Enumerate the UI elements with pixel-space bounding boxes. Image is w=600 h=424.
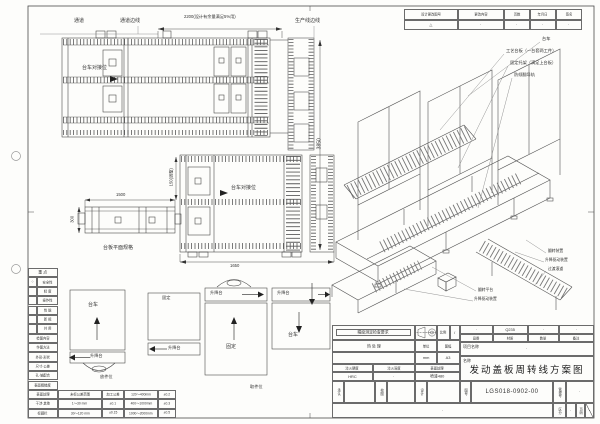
tolerance-cell: 未标公差范围 — [58, 390, 102, 399]
design-sign-cell — [427, 381, 460, 403]
station-c-box-label: 固定 — [226, 345, 236, 351]
checklist-mark-cell — [28, 296, 37, 305]
tolerance-cell: ±0.5 — [158, 409, 176, 418]
iso-callout-cart: 台车 — [542, 37, 550, 42]
station-a-box-label: 台车 — [88, 303, 98, 309]
surface-label-cell: 表面处理 — [415, 364, 460, 372]
dim-3850: 3850 — [317, 132, 323, 156]
drawing-no-label-cell: 图号 — [460, 381, 471, 403]
checklist-mark-cell — [28, 324, 37, 333]
revision-value-cell: △ — [404, 20, 458, 31]
checklist-label-cell: 操作性 — [37, 296, 59, 305]
dock-label-mid: 台车对接位 — [231, 186, 256, 192]
passage-edge-label: 通道边线 — [120, 19, 140, 25]
check-label-cell: 校图 — [375, 381, 387, 403]
checklist-label-cell: 共 用 — [37, 324, 59, 333]
tolerance-cell: ±0.2 — [158, 390, 176, 399]
revision-value-cell: · — [556, 20, 582, 31]
iso-callout-lift-drive: 升降驱动装置 — [545, 258, 568, 262]
project-name-label: 项目名称 — [463, 344, 479, 350]
drawing-name-cell: 名称 发动盖板周转线方案图 — [460, 356, 594, 381]
dock-label-top: 台车对接位 — [82, 66, 107, 72]
tolerance-cell: 30～120 mm — [58, 409, 102, 418]
tolerance-cell: ±0.15 — [102, 409, 124, 418]
dim-300: 300 — [71, 209, 76, 229]
iso-callout-pallet: 工艺台板（一台套两工件） — [506, 49, 556, 54]
tolerance-cell: ±0.3 — [158, 399, 176, 408]
checklist-item: 干涉·其他 — [28, 399, 58, 408]
station-d-box-label: 台车 — [288, 333, 298, 339]
part-no-label-cell: 品番 — [460, 334, 493, 342]
inspection-header-cell: 精度测定检查要求 — [332, 325, 415, 340]
checklist-section1-header: 重 点 — [28, 268, 58, 277]
checklist-item: 外形·形状 — [28, 352, 58, 361]
checklist-mark-cell: ○ — [28, 277, 37, 286]
revision-header-cell: 签名 — [556, 9, 582, 20]
station-a-strip-label: 升降台 — [90, 354, 103, 359]
revision-header-cell: 年月日 — [530, 9, 556, 20]
heat-value-cell — [332, 352, 415, 364]
tolerance-cell: 1～30 mm — [58, 399, 102, 408]
checklist-label-cell: 性 能 — [37, 306, 59, 315]
revision-value-cell: · — [504, 20, 530, 31]
plan-top-view — [62, 31, 270, 137]
check-sign-cell — [387, 381, 415, 403]
drawing-name-label: 名称 — [463, 358, 471, 364]
iso-view — [332, 49, 572, 313]
project-name-cell: 项目名称 · — [460, 342, 594, 356]
inspection-inner-box: 精度测定检查要求 — [336, 329, 411, 336]
dim-1500: 1500 — [116, 193, 125, 198]
checklist-item: 作图方法 — [28, 343, 58, 352]
checklist-item: 表面粗糙度 — [28, 381, 58, 390]
iso-callout-lift-drive2: 升降驱动装置 — [474, 297, 497, 301]
depth-label-cell: 淬火深度 — [373, 364, 415, 372]
station-d-strip-label: 升降台 — [277, 291, 290, 296]
checklist-label-cell: 新 规 — [37, 315, 59, 324]
checklist-mark-cell — [28, 306, 37, 315]
side-view-caption: 台板平面规格 — [103, 246, 133, 252]
production-line-column — [270, 38, 314, 150]
tolerance-cell: 120～400mm — [124, 390, 158, 399]
checklist-item: 孔·轴配合 — [28, 371, 58, 380]
station-d-caption: 取件位 — [250, 385, 263, 390]
design-label-cell: 设计 — [415, 381, 427, 403]
drawing-no-value-cell: LGS018-0902-00 — [471, 381, 553, 403]
approve-label-cell: 承认 — [332, 381, 344, 403]
dim-2200: 2200(设计有余量满足5%用) — [184, 15, 236, 20]
tolerance-cell: 加工公差 — [102, 390, 124, 399]
hardness-label-cell: 淬火硬度 — [332, 364, 373, 372]
page-slash-cell — [585, 403, 594, 418]
unit-label-cell: 单位 — [415, 340, 437, 352]
qty-label-cell: 数量 — [528, 334, 559, 342]
revision-header-cell: 设计更改图号 — [404, 9, 458, 20]
material-value-cell: Q235 — [493, 325, 528, 334]
side-view — [78, 207, 181, 233]
depth-value-cell: · — [373, 372, 415, 381]
revision-header-cell: 更改内容 — [458, 9, 504, 20]
unit-value-cell: mm — [415, 352, 437, 364]
revision-value-cell: · — [458, 20, 504, 31]
surface-value-cell: 喷漆480 — [415, 372, 460, 381]
approve-sign-cell — [344, 381, 375, 403]
station-a-caption: 放件位 — [100, 375, 113, 380]
leader-lines — [40, 26, 546, 301]
remark-label-cell: 备注 — [559, 334, 594, 342]
checklist-item: 标题栏 — [28, 409, 58, 418]
material-label-cell: 材质 — [493, 334, 528, 342]
scale-value-cell: / — [450, 325, 460, 340]
checklist-mark-cell — [28, 287, 37, 296]
mgmt-no-label-cell: 管理号 — [553, 381, 566, 403]
stamp-note-cell: · — [332, 403, 553, 418]
mgmt-no-value-cell: · — [566, 381, 594, 403]
iso-callout-rail: 防倾翻导轨 — [514, 73, 535, 78]
iso-callout-flip: 翻转装置 — [548, 249, 563, 253]
part-no-value-cell: · — [460, 325, 493, 334]
iso-callout-bracket: 固定托架（满足上台板） — [510, 61, 556, 66]
class-value-cell: · — [566, 403, 576, 418]
checklist-item: 表面处理 — [28, 390, 58, 399]
qty-value-cell: · — [528, 325, 559, 334]
page-label-cell: 页码 — [576, 403, 585, 418]
tolerance-cell: 1000～2000mm — [124, 409, 158, 418]
iso-callout-transfer: 过渡滚道 — [548, 267, 563, 271]
projection-symbol-cell — [415, 325, 437, 340]
station-c-strip-label: 升降台 — [210, 291, 223, 296]
dim-150: 150(调整) — [170, 157, 175, 197]
dim-1650: 1650 — [230, 264, 239, 269]
passage-label: 通道 — [74, 19, 84, 25]
prod-edge-label: 生产线边线 — [295, 19, 320, 25]
iso-callout-flip-platform: 翻转平台 — [478, 288, 493, 292]
hardness-value-cell: HRC — [332, 372, 373, 381]
drawing-sheet: 通道 通道边线 2200(设计有余量满足5%用) 生产线边线 台车对接位 385… — [0, 0, 600, 424]
checklist-label-cell: 精 度 — [37, 287, 59, 296]
station-diagrams — [69, 280, 330, 376]
checklist-mark-cell — [28, 315, 37, 324]
remark-value-cell: · — [559, 325, 594, 334]
tolerance-cell: 400～1000mm — [124, 399, 158, 408]
drawing-title: 发动盖板周转线方案图 — [469, 362, 584, 376]
tolerance-cell: ±0.1 — [102, 399, 124, 408]
sheet-label-cell: 图幅 — [437, 340, 460, 352]
plan-mid-view — [180, 155, 334, 257]
class-label-cell: 区分 — [553, 403, 566, 418]
checklist-label-cell: 安全性 — [37, 277, 59, 286]
station-b-strip-label: 升降台 — [168, 346, 181, 351]
checklist-item: 尺寸·公差 — [28, 362, 58, 371]
station-b-box-label: 固定 — [162, 296, 170, 301]
checklist-section2-header: 检图内容 — [28, 334, 58, 343]
revision-header-cell: 页数 — [504, 9, 530, 20]
heat-treatment-cell: 热 处 理 — [332, 340, 415, 352]
sheet-value-cell: A3 — [437, 352, 460, 364]
scale-label-cell: 比例 — [437, 325, 450, 340]
revision-value-cell: · — [530, 20, 556, 31]
